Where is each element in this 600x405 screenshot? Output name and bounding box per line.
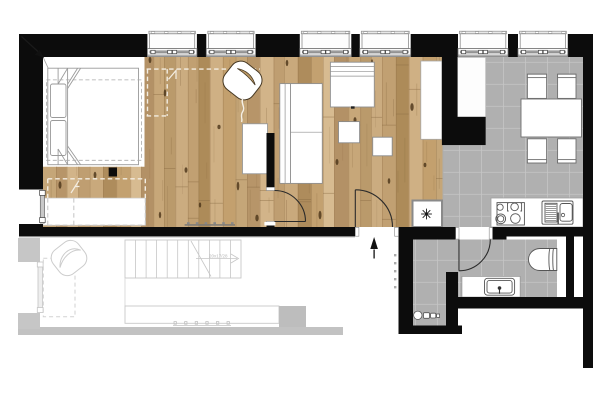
svg-text:20x17/28: 20x17/28 — [209, 254, 228, 259]
